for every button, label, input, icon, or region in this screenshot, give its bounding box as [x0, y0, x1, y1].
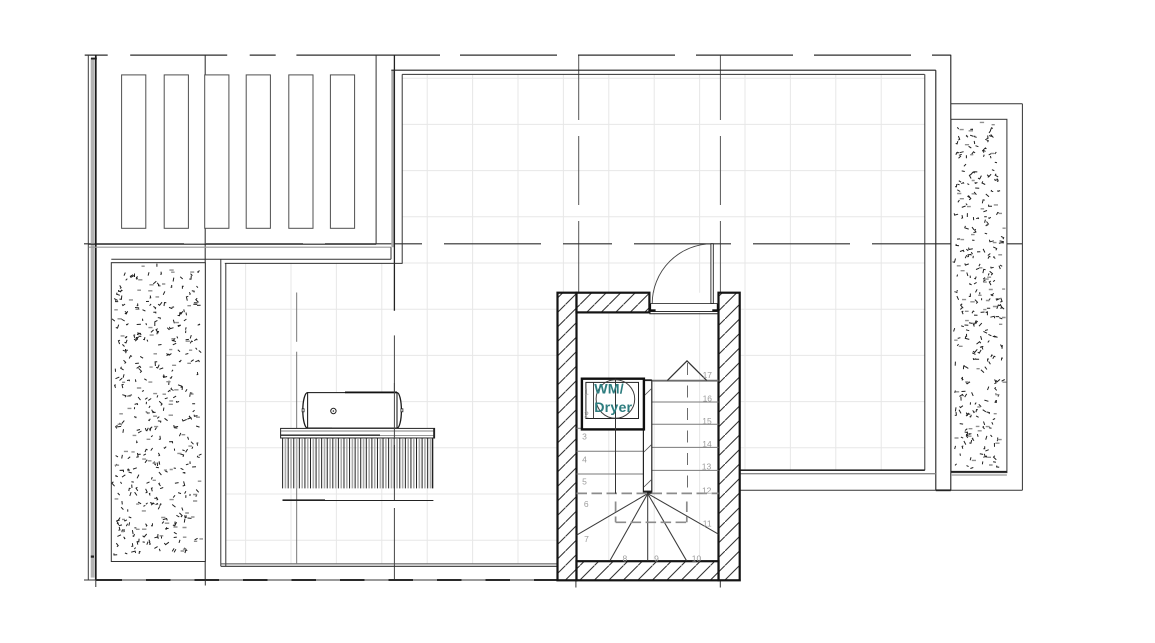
svg-text:16: 16: [703, 394, 713, 404]
svg-text:13: 13: [702, 462, 712, 472]
svg-text:14: 14: [702, 439, 712, 449]
svg-text:8: 8: [623, 554, 628, 564]
svg-text:3: 3: [582, 431, 587, 441]
svg-text:12: 12: [702, 486, 712, 496]
svg-text:6: 6: [584, 499, 589, 509]
svg-text:9: 9: [654, 554, 659, 564]
svg-text:2: 2: [584, 410, 589, 420]
svg-text:10: 10: [692, 554, 702, 564]
svg-text:WM/: WM/: [594, 382, 624, 398]
svg-text:17: 17: [703, 370, 713, 380]
svg-text:1: 1: [584, 387, 589, 397]
svg-text:5: 5: [582, 477, 587, 487]
svg-text:4: 4: [582, 454, 587, 464]
svg-text:7: 7: [584, 534, 589, 544]
svg-text:15: 15: [702, 416, 712, 426]
svg-text:11: 11: [703, 519, 712, 529]
svg-text:Dryer: Dryer: [594, 400, 632, 416]
